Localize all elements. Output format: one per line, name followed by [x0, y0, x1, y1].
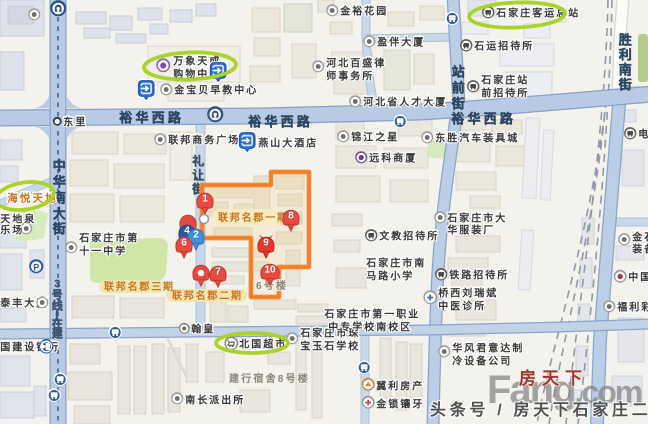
svg-text:9: 9	[263, 238, 269, 249]
svg-text:联邦名郡三期: 联邦名郡三期	[104, 280, 175, 293]
svg-text:8: 8	[288, 211, 294, 222]
svg-text:1: 1	[202, 194, 208, 205]
svg-text:房天下: 房天下	[519, 368, 588, 388]
svg-text:10: 10	[264, 265, 276, 276]
svg-text:头条号 / 房天下石家庄二手房: 头条号 / 房天下石家庄二手房	[430, 400, 648, 419]
svg-text:6: 6	[181, 238, 187, 249]
svg-text:建行宿舍8号楼: 建行宿舍8号楼	[228, 372, 310, 385]
svg-text:2: 2	[193, 230, 199, 241]
svg-text:联邦名郡二期: 联邦名郡二期	[172, 289, 243, 302]
svg-text:联邦名郡一期: 联邦名郡一期	[218, 211, 289, 224]
svg-text:7: 7	[215, 267, 221, 278]
